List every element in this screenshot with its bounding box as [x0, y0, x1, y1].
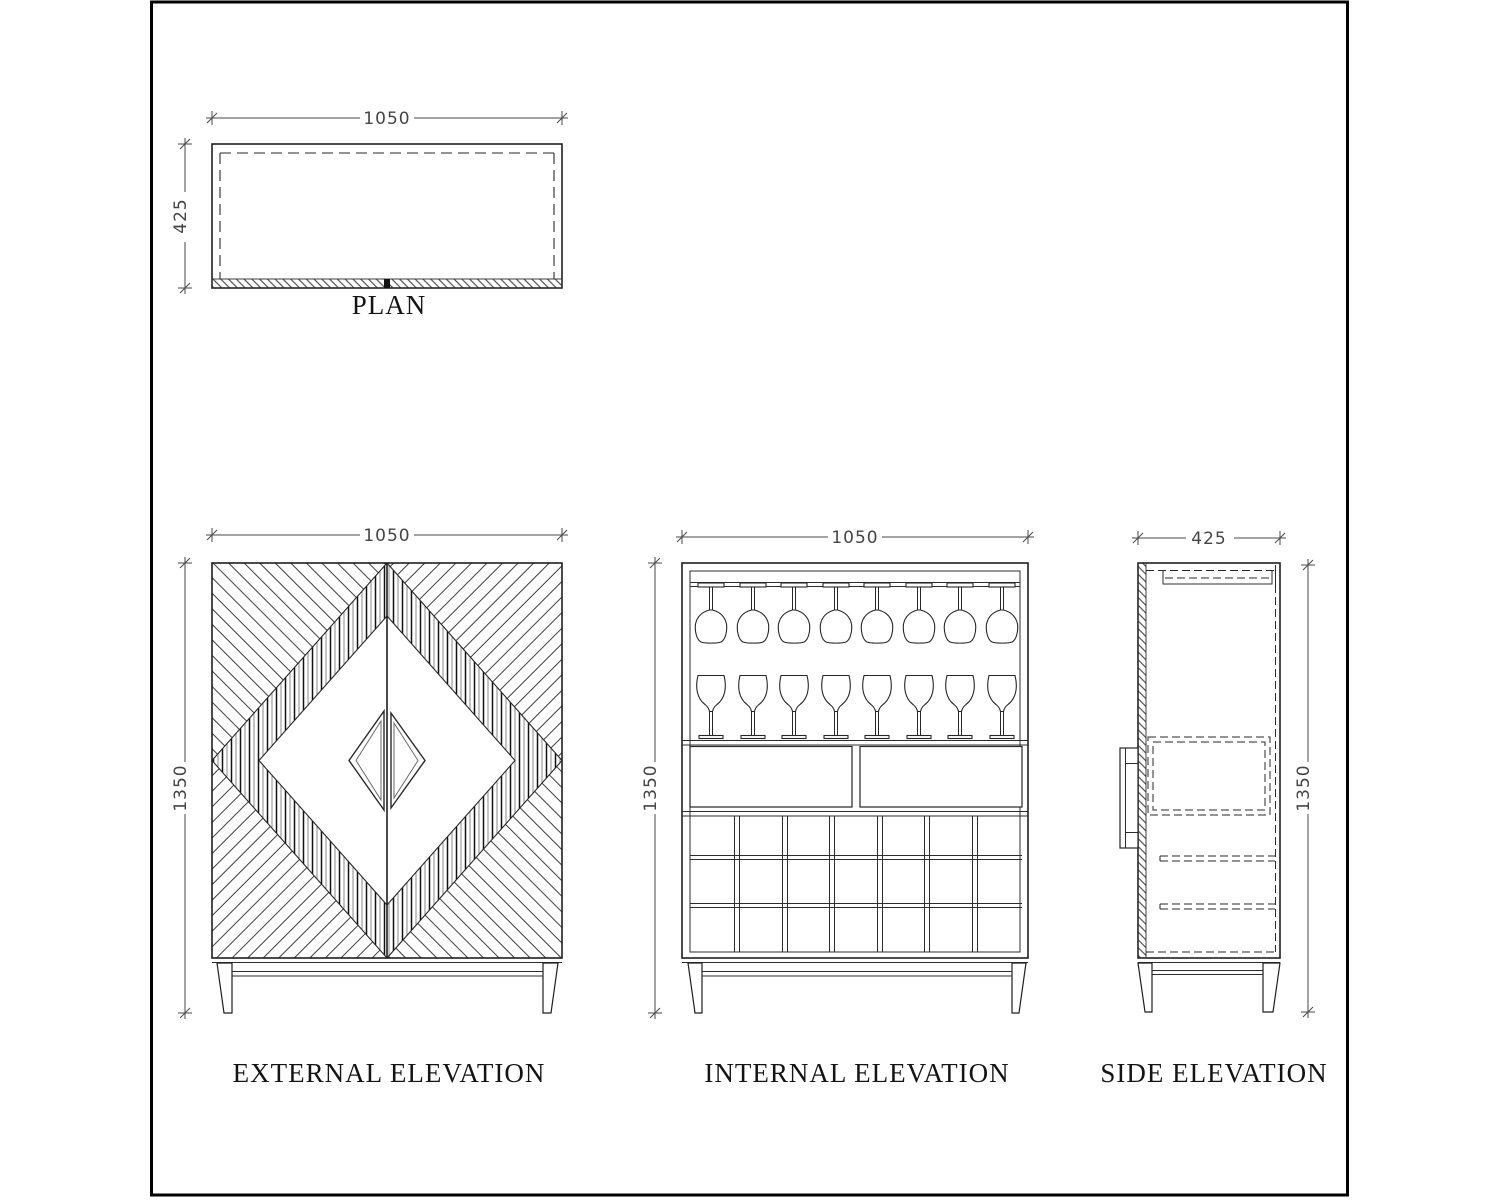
side-dim-width-text: 425 — [1191, 529, 1226, 549]
external-elevation-label: EXTERNAL ELEVATION — [233, 1058, 546, 1088]
side-elevation-label: SIDE ELEVATION — [1100, 1058, 1327, 1088]
side-door-section-hatch — [1138, 563, 1146, 958]
internal-dim-height-text: 1350 — [641, 764, 661, 811]
drawer-right — [860, 747, 1022, 808]
internal-elevation-label: INTERNAL ELEVATION — [704, 1058, 1009, 1088]
internal-dim-width-text: 1050 — [831, 528, 878, 548]
external-dim-height-text: 1350 — [171, 764, 191, 811]
plan-dim-width-text: 1050 — [363, 109, 410, 129]
cad-drawing: 1050 425 PLAN 1050 1350 — [0, 0, 1500, 1200]
side-dim-height-text: 1350 — [1294, 764, 1314, 811]
plan-dim-depth-text: 425 — [171, 198, 191, 233]
plan-label: PLAN — [352, 290, 427, 320]
drawing-sheet: 1050 425 PLAN 1050 1350 — [0, 0, 1500, 1200]
drawer-left — [690, 747, 852, 808]
plan-door-meeting-mark — [384, 279, 390, 288]
side-handle — [1120, 748, 1138, 848]
external-dim-width-text: 1050 — [363, 526, 410, 546]
